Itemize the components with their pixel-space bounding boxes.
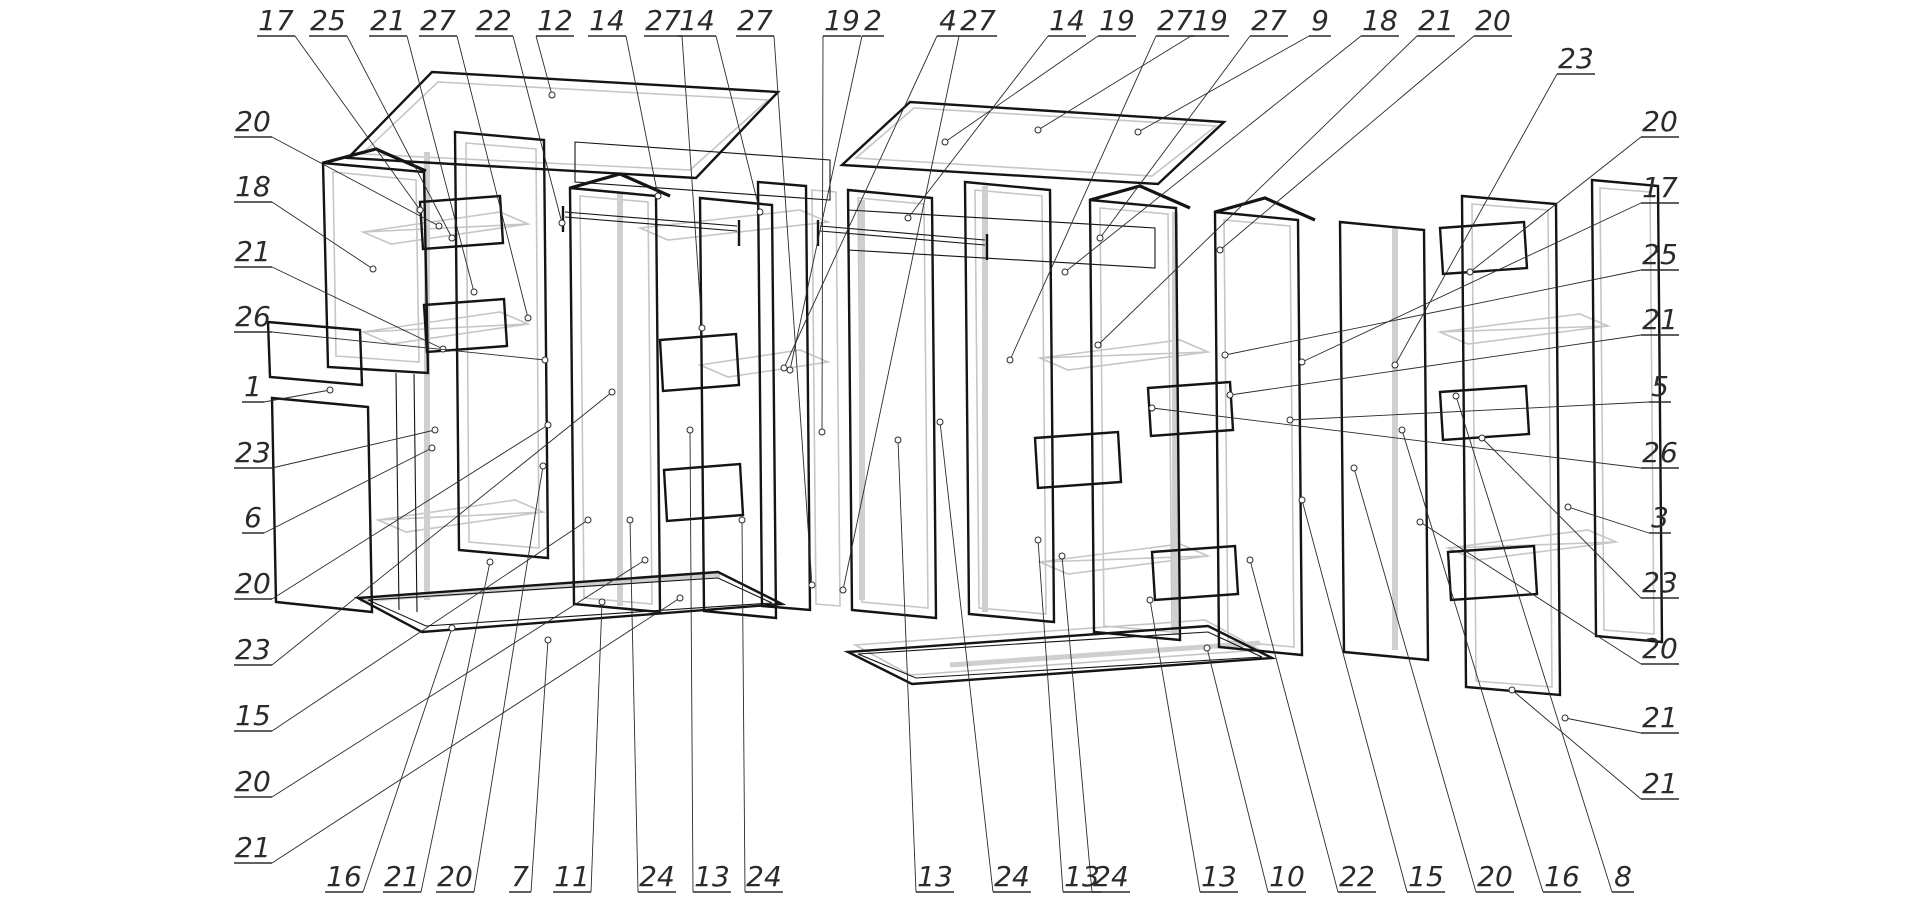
callout-target-dot (677, 595, 683, 601)
part-callout-6: 6 (242, 445, 435, 534)
part-number-label: 4 (939, 4, 957, 37)
part-number-label: 17 (258, 4, 294, 37)
callout-leader-line (630, 520, 638, 892)
part-number-label: 23 (1558, 42, 1594, 75)
callout-leader-line (531, 640, 548, 892)
callout-target-dot (429, 445, 435, 451)
part-number-label: 23 (1642, 566, 1678, 599)
part-callout-13: 13 (1035, 537, 1101, 893)
callout-leader-line (1512, 690, 1641, 799)
callout-target-dot (487, 559, 493, 565)
callout-target-dot (781, 365, 787, 371)
callout-leader-line (1354, 468, 1476, 892)
callout-leader-line (295, 36, 420, 210)
part-number-label: 25 (1642, 238, 1678, 271)
part-number-label: 23 (235, 633, 271, 666)
callout-leader-line (272, 392, 612, 665)
callout-leader-line (421, 562, 490, 892)
part-callout-20: 20 (234, 105, 442, 229)
part-number-label: 20 (1475, 4, 1511, 37)
part-callout-21: 21 (1227, 303, 1679, 398)
callout-leader-line (1220, 36, 1474, 250)
callout-leader-line (1062, 556, 1092, 892)
callout-target-dot (1217, 247, 1223, 253)
callout-leader-line (272, 202, 373, 269)
part-number-label: 24 (639, 860, 675, 893)
part-number-label: 19 (824, 4, 860, 37)
part-callout-21: 21 (234, 235, 446, 352)
callout-target-dot (432, 427, 438, 433)
callout-leader-line (1456, 396, 1612, 892)
callout-target-dot (1059, 553, 1065, 559)
part-callout-27: 27 (1097, 4, 1288, 241)
callout-target-dot (545, 637, 551, 643)
callout-target-dot (787, 367, 793, 373)
callout-leader-line (536, 36, 552, 95)
part-number-label: 23 (235, 436, 271, 469)
part-number-label: 27 (1157, 4, 1193, 37)
callout-target-dot (449, 235, 455, 241)
callout-leader-line (1010, 36, 1156, 360)
part-callout-15: 15 (1299, 497, 1445, 893)
part-callout-16: 16 (325, 625, 455, 893)
part-callout-22: 22 (1247, 557, 1376, 893)
callout-target-dot (540, 463, 546, 469)
callout-leader-line (513, 36, 562, 223)
callout-target-dot (545, 422, 551, 428)
callout-leader-line (591, 602, 602, 892)
part-number-label: 24 (1093, 860, 1129, 893)
part-number-label: 1 (244, 370, 262, 403)
part-number-label: 27 (420, 4, 456, 37)
part-number-label: 15 (1408, 860, 1444, 893)
callout-leader-line (898, 440, 916, 892)
part-callout-12: 12 (536, 4, 574, 98)
part-number-label: 24 (994, 860, 1030, 893)
part-number-label: 5 (1651, 370, 1669, 403)
drawing-page: 1725212722121427142719242714192719279182… (0, 0, 1920, 904)
callout-target-dot (655, 193, 661, 199)
callout-target-dot (542, 357, 548, 363)
callout-target-dot (1204, 645, 1210, 651)
part-number-label: 22 (1339, 860, 1375, 893)
callout-target-dot (937, 419, 943, 425)
callout-target-dot (1035, 127, 1041, 133)
part-callout-18: 18 (1062, 4, 1399, 275)
part-number-label: 27 (737, 4, 773, 37)
callout-leader-line (474, 466, 543, 892)
callout-target-dot (1062, 269, 1068, 275)
callout-target-dot (809, 582, 815, 588)
callout-leader-line (822, 36, 823, 432)
part-callout-26: 26 (1149, 405, 1679, 469)
callout-target-dot (687, 427, 693, 433)
callout-target-dot (1247, 557, 1253, 563)
part-number-label: 13 (694, 860, 730, 893)
part-number-label: 21 (384, 860, 420, 893)
callout-target-dot (1479, 435, 1485, 441)
part-number-label: 19 (1192, 4, 1228, 37)
callout-target-dot (1509, 687, 1515, 693)
part-number-label: 20 (1477, 860, 1513, 893)
part-number-label: 11 (554, 860, 590, 893)
callout-leader-line (1568, 507, 1649, 533)
callout-target-dot (1417, 519, 1423, 525)
callout-leader-line (264, 448, 432, 533)
part-number-label: 18 (235, 170, 271, 203)
callout-target-dot (609, 389, 615, 395)
part-callout-7: 7 (509, 637, 551, 893)
part-callout-8: 8 (1453, 393, 1634, 893)
callout-target-dot (327, 387, 333, 393)
callout-leader-line (1225, 270, 1641, 355)
part-number-label: 20 (437, 860, 473, 893)
part-number-label: 16 (1544, 860, 1580, 893)
part-number-label: 2 (864, 4, 882, 37)
part-number-label: 20 (1642, 105, 1678, 138)
part-number-label: 19 (1099, 4, 1135, 37)
callout-target-dot (1095, 342, 1101, 348)
part-number-label: 17 (1642, 171, 1678, 204)
callout-leader-line (272, 598, 680, 863)
callout-leader-line (272, 430, 435, 468)
callout-leader-line (1207, 648, 1268, 892)
callout-leader-line (1098, 36, 1417, 345)
part-number-label: 25 (310, 4, 346, 37)
callout-leader-line (690, 430, 693, 892)
part-number-label: 26 (1642, 436, 1678, 469)
part-callout-15: 15 (234, 517, 591, 732)
part-callout-20: 20 (234, 422, 551, 600)
part-callouts: 1725212722121427142719242714192719279182… (234, 4, 1679, 893)
callout-leader-line (945, 36, 1098, 142)
callout-leader-line (363, 628, 452, 892)
callout-target-dot (942, 139, 948, 145)
part-number-label: 6 (244, 501, 262, 534)
part-callout-1: 1 (242, 370, 333, 403)
callout-target-dot (1007, 357, 1013, 363)
part-callout-10: 10 (1204, 645, 1306, 893)
part-callout-20: 20 (436, 463, 546, 893)
part-callout-21: 21 (234, 595, 683, 864)
callout-leader-line (1302, 500, 1407, 892)
callout-leader-line (1138, 36, 1309, 132)
part-number-label: 13 (1201, 860, 1237, 893)
part-number-label: 21 (1642, 701, 1678, 734)
part-callout-2: 2 (787, 4, 884, 373)
part-callout-26: 26 (234, 300, 548, 363)
part-callout-13: 13 (895, 437, 954, 893)
callout-leader-line (626, 36, 658, 196)
callout-target-dot (1565, 504, 1571, 510)
callout-leader-line (347, 36, 452, 238)
part-callout-22: 22 (475, 4, 565, 226)
part-number-label: 21 (1418, 4, 1454, 37)
callout-target-dot (819, 429, 825, 435)
callout-target-dot (840, 587, 846, 593)
callout-leader-line (272, 425, 548, 599)
callout-target-dot (1149, 405, 1155, 411)
callout-target-dot (436, 223, 442, 229)
part-number-label: 21 (235, 831, 271, 864)
callout-leader-line (742, 520, 745, 892)
part-number-label: 22 (476, 4, 512, 37)
part-number-label: 20 (1642, 632, 1678, 665)
callout-leader-line (1565, 718, 1641, 733)
part-number-label: 21 (1642, 767, 1678, 800)
part-callout-21: 21 (369, 4, 477, 295)
callout-target-dot (1467, 269, 1473, 275)
callout-target-dot (1399, 427, 1405, 433)
wardrobe-right-wireframe (818, 102, 1662, 695)
callout-target-dot (549, 92, 555, 98)
callout-target-dot (559, 220, 565, 226)
part-number-label: 18 (1362, 4, 1398, 37)
part-callout-3: 3 (1565, 501, 1671, 534)
callout-target-dot (449, 625, 455, 631)
callout-leader-line (1038, 540, 1063, 892)
part-number-label: 21 (1642, 303, 1678, 336)
callout-leader-line (790, 36, 862, 370)
part-number-label: 9 (1311, 4, 1329, 37)
part-number-label: 3 (1651, 501, 1669, 534)
callout-target-dot (1227, 392, 1233, 398)
part-number-label: 27 (1251, 4, 1287, 37)
part-callout-13: 13 (1147, 597, 1238, 893)
part-number-label: 26 (235, 300, 271, 333)
part-callout-11: 11 (553, 599, 605, 893)
callout-target-dot (1035, 537, 1041, 543)
part-number-label: 21 (370, 4, 406, 37)
callout-target-dot (1299, 497, 1305, 503)
part-callout-13: 13 (687, 427, 731, 893)
part-number-label: 21 (235, 235, 271, 268)
callout-target-dot (1147, 597, 1153, 603)
part-number-label: 14 (589, 4, 625, 37)
callout-target-dot (585, 517, 591, 523)
part-number-label: 15 (235, 699, 271, 732)
part-number-label: 12 (537, 4, 573, 37)
callout-leader-line (1150, 600, 1200, 892)
part-number-label: 24 (746, 860, 782, 893)
callout-target-dot (905, 215, 911, 221)
ghost-wireframe (333, 82, 1654, 687)
callout-target-dot (417, 207, 423, 213)
part-number-label: 13 (917, 860, 953, 893)
part-number-label: 14 (679, 4, 715, 37)
callout-target-dot (1097, 235, 1103, 241)
part-number-label: 27 (645, 4, 681, 37)
part-callout-20: 20 (1417, 519, 1679, 665)
callout-target-dot (1299, 359, 1305, 365)
part-callout-20: 20 (1217, 4, 1512, 253)
callout-leader-line (682, 36, 702, 328)
part-callout-21: 21 (1562, 701, 1679, 734)
part-number-label: 20 (235, 765, 271, 798)
part-number-label: 8 (1614, 860, 1632, 893)
callout-target-dot (627, 517, 633, 523)
exploded-view-drawing: 1725212722121427142719242714192719279182… (0, 0, 1920, 904)
callout-leader-line (1065, 36, 1361, 272)
callout-target-dot (699, 325, 705, 331)
part-number-label: 20 (235, 567, 271, 600)
part-number-label: 10 (1269, 860, 1305, 893)
callout-target-dot (1287, 417, 1293, 423)
callout-target-dot (1392, 362, 1398, 368)
part-callout-23: 23 (234, 427, 438, 469)
callout-target-dot (1453, 393, 1459, 399)
callout-target-dot (739, 517, 745, 523)
part-number-label: 27 (960, 4, 996, 37)
callout-leader-line (1482, 438, 1641, 598)
callout-target-dot (599, 599, 605, 605)
part-number-label: 7 (511, 860, 529, 893)
part-number-label: 16 (326, 860, 362, 893)
callout-target-dot (895, 437, 901, 443)
callout-target-dot (757, 209, 763, 215)
callout-leader-line (716, 36, 760, 212)
callout-target-dot (1222, 352, 1228, 358)
callout-target-dot (1351, 465, 1357, 471)
part-callout-17: 17 (1299, 171, 1679, 365)
callout-leader-line (1402, 430, 1543, 892)
callout-target-dot (471, 289, 477, 295)
part-number-label: 14 (1049, 4, 1085, 37)
callout-target-dot (1562, 715, 1568, 721)
part-number-label: 20 (235, 105, 271, 138)
callout-target-dot (370, 266, 376, 272)
callout-target-dot (525, 315, 531, 321)
callout-target-dot (1135, 129, 1141, 135)
callout-target-dot (642, 557, 648, 563)
callout-leader-line (1395, 74, 1557, 365)
